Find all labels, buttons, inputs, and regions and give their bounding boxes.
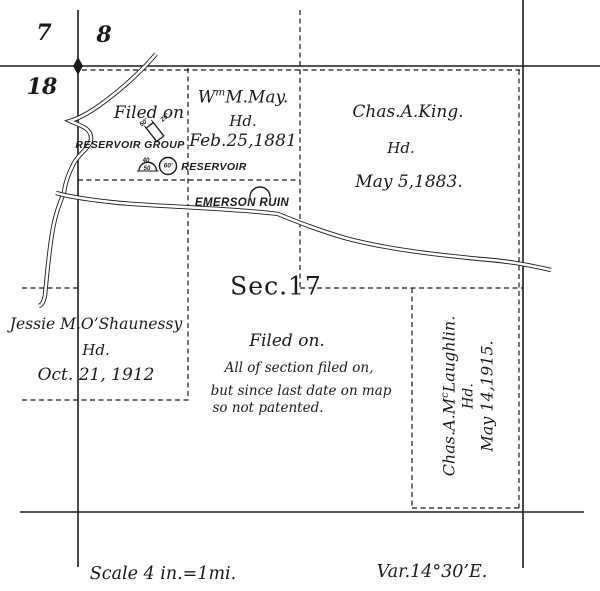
- mclaughlin-name-post: Laughlin.: [440, 316, 459, 393]
- section-corner-diamond-marker: [73, 57, 83, 75]
- mclaughlin-claim-name: Chas.A.McLaughlin.: [440, 316, 459, 477]
- oshaunessy-claim-date: Oct. 21, 1912: [38, 365, 155, 385]
- emerson-ruin-label: EMERSON RUIN: [195, 197, 289, 209]
- reservoir-label: RESERVOIR: [181, 161, 246, 173]
- filed-on-center-note: Filed on.: [249, 331, 325, 351]
- may-claim-hd: Hd.: [229, 112, 256, 130]
- section-17-label: Sec.17: [230, 272, 322, 301]
- emerson-ruin-dome-symbol: [250, 187, 270, 197]
- section-number-18: 18: [27, 74, 58, 100]
- may-claim-name: WmM.May.: [198, 87, 289, 108]
- may-claim-date: Feb.25,1881: [189, 131, 297, 151]
- section-note-line1: All of section filed on,: [225, 360, 374, 376]
- may-name-sup: m: [215, 87, 225, 99]
- king-claim-name: Chas.A.King.: [352, 102, 463, 122]
- scale-note: Scale 4 in.=1mi.: [90, 564, 236, 584]
- reservoir-group-label: RESERVOIR GROUP: [75, 139, 184, 151]
- dim-50ft-label-2: 50: [144, 166, 151, 172]
- filed-on-upper-note: Filed on: [114, 103, 184, 123]
- section-number-7: 7: [36, 20, 51, 46]
- magnetic-variation-note: Var.14°30’E.: [377, 562, 488, 582]
- dim-60ft-label: 60': [164, 163, 173, 170]
- king-claim-date: May 5,1883.: [355, 172, 462, 192]
- mclaughlin-claim-date: May 14,1915.: [478, 316, 497, 477]
- oshaunessy-claim-name: Jessie M.O’Shaunessy: [10, 315, 182, 333]
- section-note-line2: but since last date on map: [211, 383, 392, 399]
- oshaunessy-claim-hd: Hd.: [82, 341, 109, 359]
- emerson-road: [56, 193, 551, 270]
- section-note-line3: so not patented.: [212, 400, 323, 416]
- king-claim-hd: Hd.: [387, 139, 414, 157]
- dim-40ft-label: 40: [143, 158, 150, 164]
- may-name-post: M.May.: [225, 87, 288, 107]
- may-name-pre: W: [198, 87, 215, 107]
- mclaughlin-claim-hd: Hd.: [461, 316, 477, 477]
- mclaughlin-name-pre: Chas.A.M: [440, 398, 459, 476]
- survey-plat-map: 7 8 18 Sec.17 Filed on Filed on. All of …: [0, 0, 600, 591]
- mclaughlin-name-sup: c: [440, 392, 451, 398]
- section-number-8: 8: [96, 22, 111, 48]
- mclaughlin-claim-block: Chas.A.McLaughlin. Hd. May 14,1915.: [440, 316, 497, 477]
